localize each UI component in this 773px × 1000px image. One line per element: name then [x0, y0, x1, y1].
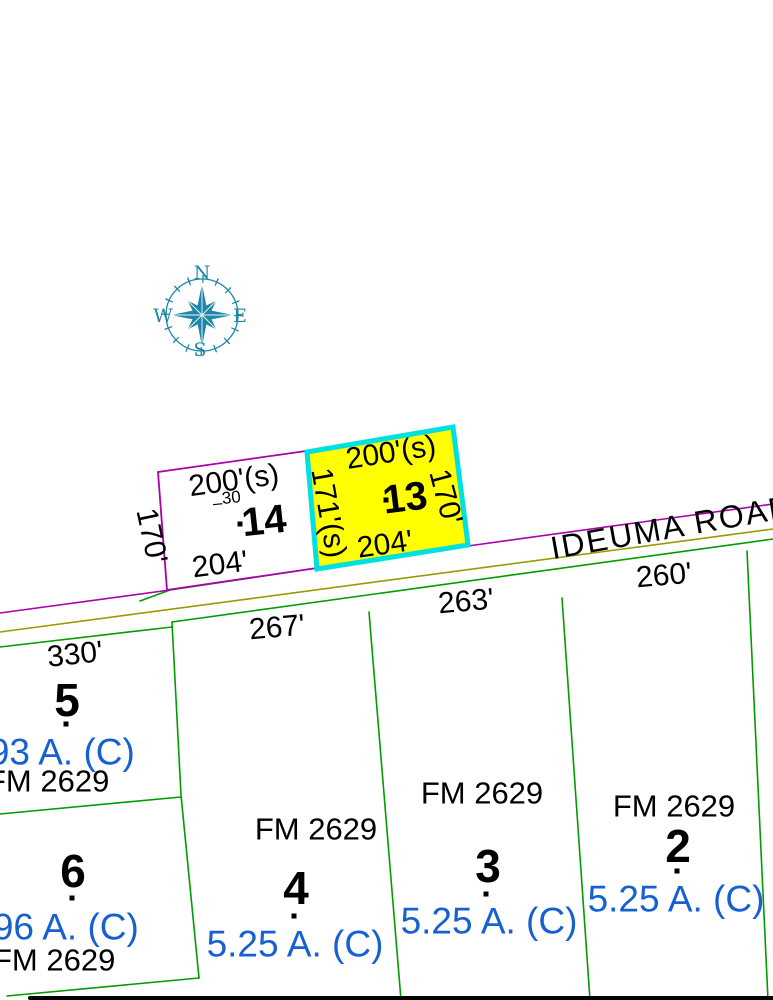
lot14-number-label: 14 [240, 499, 288, 543]
lot3-road-label: FM 2629 [421, 778, 543, 809]
lot2-front-dimension: 260' [635, 559, 693, 594]
road-north-magenta-line-west [0, 590, 170, 613]
lot4-acreage-label: 5.25 A. (C) [207, 926, 384, 963]
lot4-centroid-dot [292, 914, 297, 919]
lot2-centroid-dot [675, 869, 680, 874]
lot5-centroid-dot [64, 722, 69, 727]
lot3-acreage-label: 5.25 A. (C) [401, 903, 578, 940]
lot5-lot6-divider-line [0, 797, 181, 814]
lot6-centroid-dot [70, 896, 75, 901]
compass-rose-icon: N S W E [153, 262, 247, 361]
lot5-lot6-east-boundary-line [172, 622, 199, 978]
plat-map: N S W E [0, 0, 773, 1000]
lot2-road-label: FM 2629 [613, 791, 735, 822]
lot2-number-label: 2 [665, 823, 691, 869]
lot13-south-dimension: 204' [355, 526, 414, 563]
lot14-centroid-dot [238, 522, 243, 527]
compass-east-label: E [233, 305, 247, 327]
lot5-road-label: FM 2629 [0, 766, 109, 797]
lot3-centroid-dot [484, 892, 489, 897]
lot6-road-label: FM 2629 [0, 945, 115, 976]
lot6-number-label: 6 [60, 848, 86, 894]
lot14-note-value: 30 [221, 488, 242, 507]
lot4-road-label: FM 2629 [255, 814, 377, 845]
compass-north-label: N [194, 262, 211, 284]
lot2-acreage-label: 5.25 A. (C) [588, 881, 765, 918]
compass-south-label: S [193, 339, 206, 361]
lot14-south-dimension: 204' [190, 547, 249, 584]
lot6-south-boundary-line [7, 978, 199, 996]
lot5-number-label: 5 [54, 677, 80, 723]
lot13-centroid-dot [384, 498, 389, 503]
lot4-front-dimension: 267' [248, 611, 306, 646]
lot6-acreage-label: 1.96 A. (C) [0, 909, 139, 946]
lot3-front-dimension: 263' [437, 585, 495, 620]
compass-west-label: W [153, 305, 173, 327]
lot2-east-boundary-line [747, 551, 768, 1000]
lot14-note: –30 [212, 492, 242, 512]
lot3-number-label: 3 [475, 843, 501, 889]
lot5-front-dimension: 330' [46, 637, 105, 673]
lot4-number-label: 4 [283, 865, 309, 911]
